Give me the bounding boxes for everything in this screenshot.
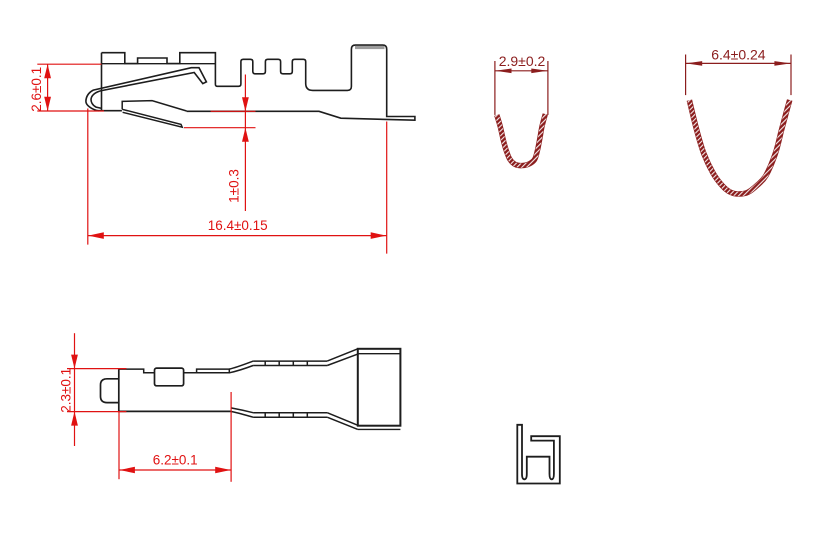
svg-text:2.6±0.1: 2.6±0.1 bbox=[29, 67, 44, 112]
svg-text:2.9±0.2: 2.9±0.2 bbox=[499, 53, 546, 69]
svg-text:6.2±0.1: 6.2±0.1 bbox=[153, 453, 198, 468]
svg-text:2.3±0.1: 2.3±0.1 bbox=[59, 368, 74, 413]
svg-text:1±0.3: 1±0.3 bbox=[226, 169, 241, 203]
svg-text:6.4±0.24: 6.4±0.24 bbox=[711, 47, 766, 63]
svg-text:16.4±0.15: 16.4±0.15 bbox=[208, 218, 268, 233]
